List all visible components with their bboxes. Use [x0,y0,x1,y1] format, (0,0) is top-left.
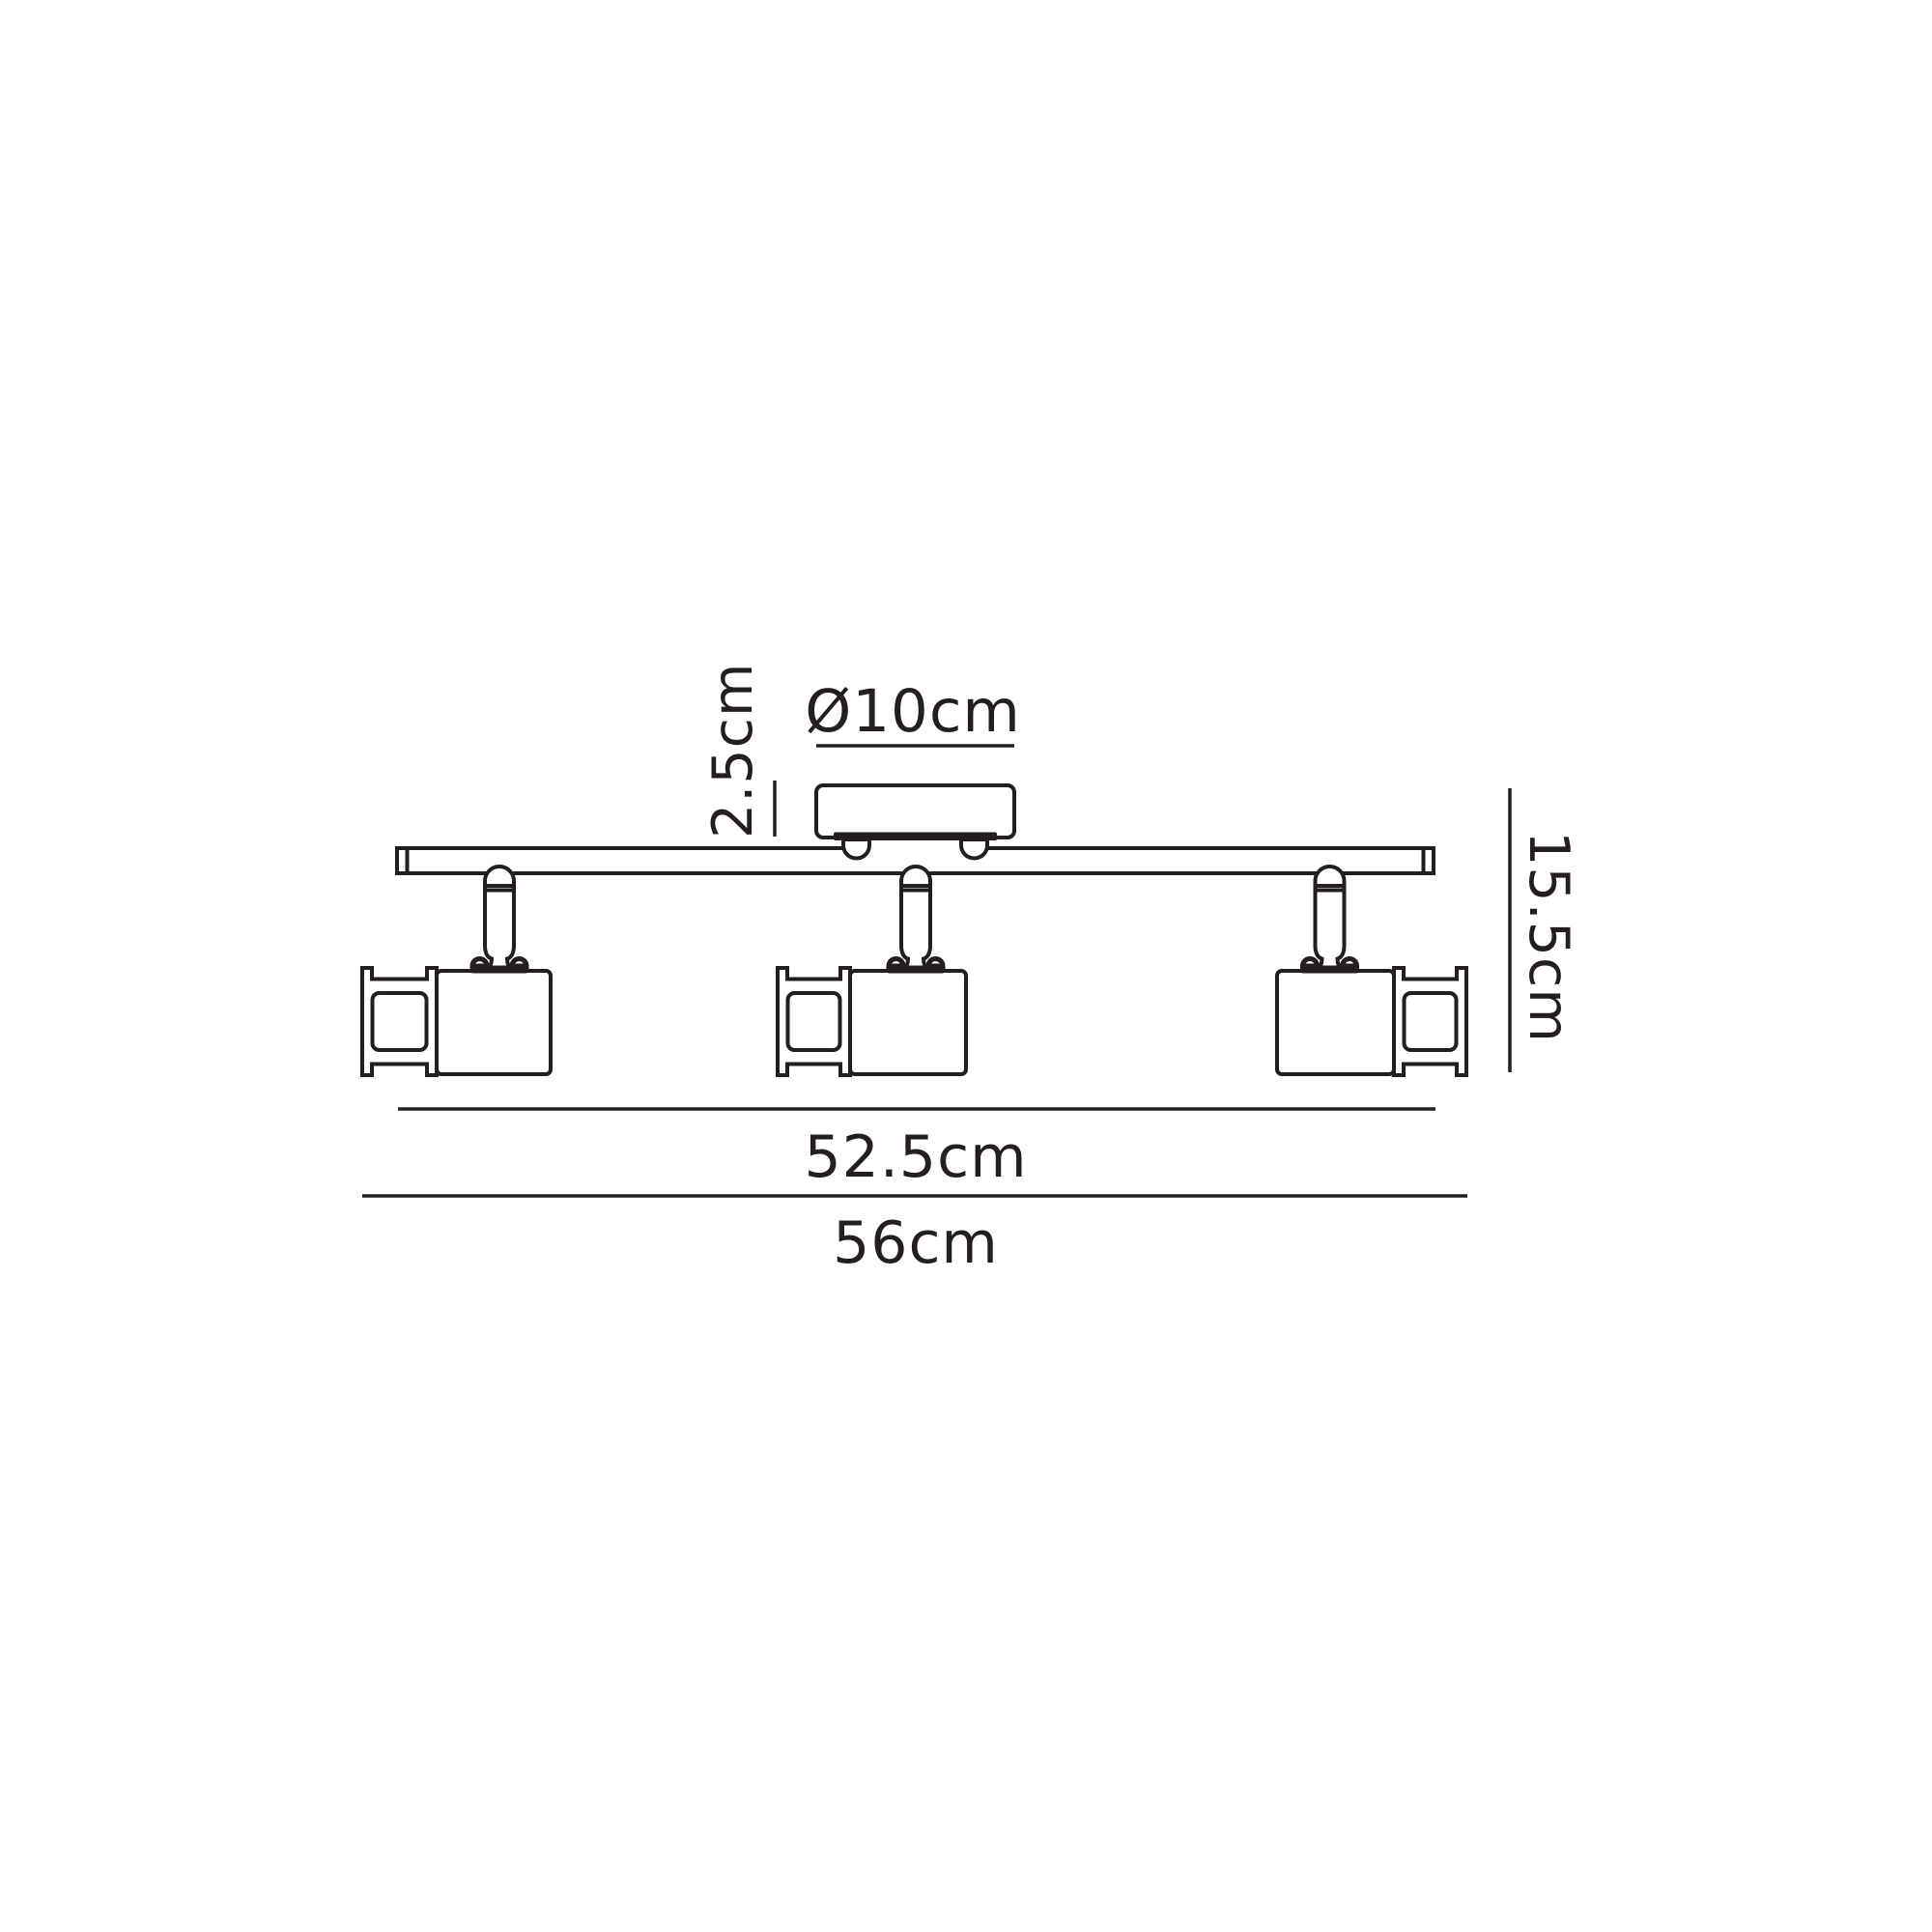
dimension-diagram-page: Ø10cm 2.5cm 15.5cm 52.5cm 56cm [0,0,1932,1932]
overall-width-label: 56cm [833,1209,999,1277]
head-body-right [1277,971,1394,1074]
stem-mount-plate [470,966,529,974]
spotlight-head-left [362,968,551,1075]
swivel-stem-left [470,867,529,974]
head-lens-ring-middle [788,993,840,1050]
bar-length-label: 52.5cm [804,1123,1027,1191]
dimension-canopy-diameter: Ø10cm [805,677,1021,746]
stem-mount-screw-right [1343,959,1357,966]
spotlight-head-right [1277,968,1466,1075]
dimension-bar-length: 52.5cm [398,1109,1435,1191]
stem-mount-screw-left [889,959,903,966]
head-lens-ring-left [373,993,427,1050]
overall-height-label: 15.5cm [1517,831,1580,1043]
canopy-height-label: 2.5cm [701,662,765,838]
canopy-screw-right [961,839,987,858]
dimension-canopy-height: 2.5cm [701,662,775,838]
stem-capsule [901,867,930,968]
stem-mount-plate [1300,966,1359,974]
spotlight-head-middle [778,968,966,1075]
head-lens-ring-right [1405,993,1457,1050]
dimension-overall-width: 56cm [362,1196,1467,1277]
stem-mount-screw-left [472,959,487,966]
swivel-stem-right [1300,867,1359,973]
stem-capsule [485,867,514,968]
canopy-plate [816,785,1014,838]
canopy-diameter-label: Ø10cm [805,677,1021,746]
fixture-dimension-drawing: Ø10cm 2.5cm 15.5cm 52.5cm 56cm [0,0,1932,1932]
canopy-screw-left [843,839,869,858]
stem-mount-screw-right [512,959,526,966]
stem-mount-screw-right [928,959,943,966]
head-body-left [437,971,551,1074]
dimension-overall-height: 15.5cm [1510,788,1580,1072]
stem-capsule [1316,867,1345,967]
stem-mount-plate [887,966,946,974]
head-body-middle [850,971,966,1074]
swivel-stem-middle [887,867,946,974]
stem-mount-screw-left [1303,959,1318,966]
